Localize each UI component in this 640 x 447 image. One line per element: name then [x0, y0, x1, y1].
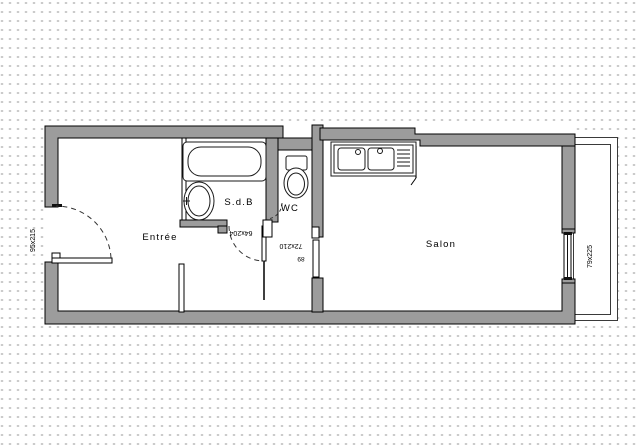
salon-door-jamb	[312, 227, 319, 238]
dim-entrance-door: 95x215	[30, 229, 37, 252]
wc-door-leaf	[263, 220, 272, 237]
room-label-entree: Entrée	[142, 232, 177, 243]
room-label-salon: Salon	[426, 239, 456, 250]
wall-partition-salon-upper	[312, 125, 323, 237]
dim-salon-door: 72x210	[279, 242, 302, 249]
room-label-wc: WC	[281, 203, 299, 214]
wall-entree-salon-stub	[179, 264, 184, 312]
dim-sdb-door: 64x204	[229, 229, 252, 236]
wall-partition-sdb-wc	[266, 138, 278, 222]
salon-door-leaf	[313, 240, 319, 277]
window-tick-top	[564, 232, 572, 235]
entrance-jamb-tick	[52, 204, 62, 207]
dim-window: 79x225	[587, 245, 594, 268]
wall-partition-salon-lower	[312, 278, 323, 312]
entrance-door-leaf	[52, 258, 112, 263]
wall-right-upper	[562, 146, 575, 230]
floor-plan-drawing: Entrée S.d.B WC Salon 95x215 64x204 72x2…	[0, 0, 640, 447]
entrance-door-hinge	[52, 253, 60, 258]
sink-basin-right	[368, 148, 394, 170]
wall-partition-sdb-step	[218, 226, 227, 233]
apartment-floor	[45, 125, 575, 324]
balcony-floor	[573, 137, 618, 321]
floor-plan-canvas: Entrée S.d.B WC Salon 95x215 64x204 72x2…	[0, 0, 640, 447]
sink-basin-left	[338, 148, 365, 170]
window-tick-bottom	[564, 277, 572, 280]
dim-passage: 89	[297, 255, 305, 262]
room-label-sdb: S.d.B	[224, 197, 253, 208]
wall-wc-top	[274, 138, 312, 150]
